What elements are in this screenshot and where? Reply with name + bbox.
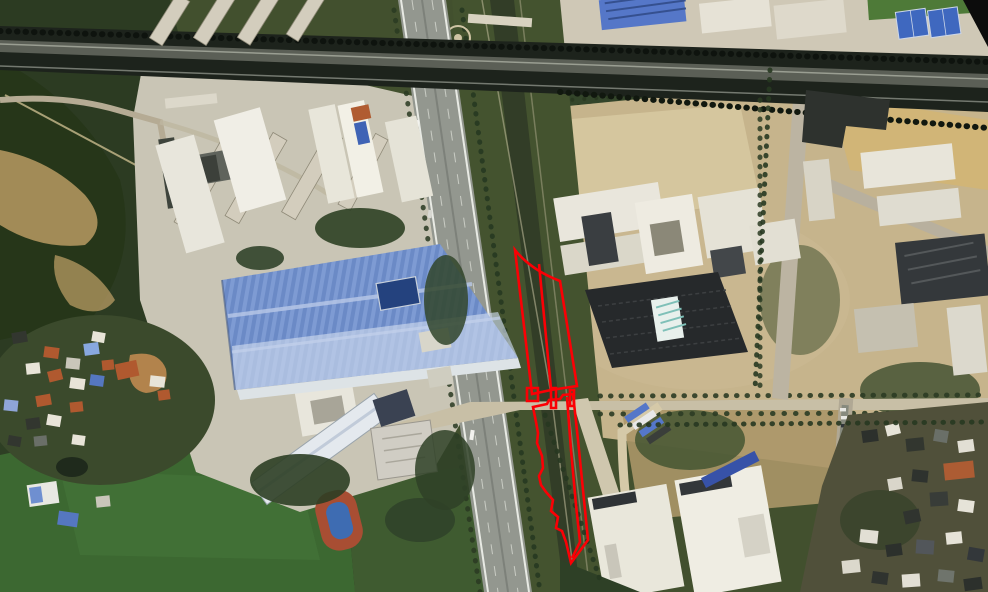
satellite-map-canvas [0, 0, 988, 592]
village-pond [56, 457, 88, 477]
satellite-map-viewport [0, 0, 988, 592]
orange-roof-house [943, 460, 975, 480]
